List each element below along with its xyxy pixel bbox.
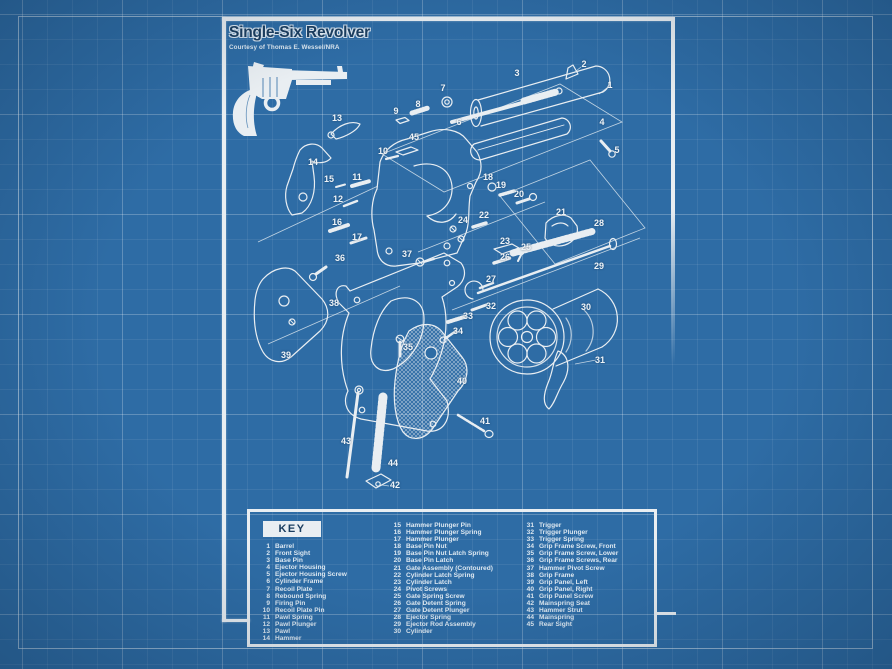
- key-item-number: 21: [389, 565, 401, 572]
- part-cylinder-frame: [372, 130, 481, 267]
- part-base-pin: [452, 88, 562, 122]
- key-item-number: 25: [389, 593, 401, 600]
- key-item-number: 36: [522, 557, 534, 564]
- key-item-name: Grip Frame: [539, 572, 574, 579]
- key-item-name: Ejector Spring: [406, 614, 451, 621]
- key-item: 43Hammer Strut: [522, 607, 618, 614]
- key-item: 23Cylinder Latch: [389, 579, 493, 586]
- key-item-number: 17: [389, 536, 401, 543]
- key-item-name: Trigger Plunger: [539, 529, 588, 536]
- key-item: 11Pawl Spring: [258, 614, 347, 621]
- key-item-number: 30: [389, 628, 401, 635]
- key-item: 9Firing Pin: [258, 600, 347, 607]
- key-item-number: 12: [258, 621, 270, 628]
- key-item-number: 41: [522, 593, 534, 600]
- key-item-name: Recoil Plate: [275, 586, 312, 593]
- key-item-name: Front Sight: [275, 550, 310, 557]
- key-item-number: 42: [522, 600, 534, 607]
- key-column-2: 15Hammer Plunger Pin16Hammer Plunger Spr…: [389, 522, 493, 636]
- key-item: 39Grip Panel, Left: [522, 579, 618, 586]
- key-item: 10Recoil Plate Pin: [258, 607, 347, 614]
- key-item: 22Cylinder Latch Spring: [389, 572, 493, 579]
- key-item-number: 15: [389, 522, 401, 529]
- key-item-name: Grip Frame Screw, Lower: [539, 550, 618, 557]
- key-item-name: Firing Pin: [275, 600, 305, 607]
- key-item-name: Hammer: [275, 635, 301, 642]
- key-item-number: 20: [389, 557, 401, 564]
- key-item: 31Trigger: [522, 522, 618, 529]
- key-item: 25Gate Spring Screw: [389, 593, 493, 600]
- key-item-name: Hammer Strut: [539, 607, 583, 614]
- key-item-name: Base Pin: [275, 557, 303, 564]
- key-item-number: 6: [258, 578, 270, 585]
- key-item-number: 3: [258, 557, 270, 564]
- part-ejector-rod-group: [465, 231, 616, 299]
- key-item-name: Grip Panel Screw: [539, 593, 593, 600]
- key-item-name: Hammer Plunger Spring: [406, 529, 481, 536]
- key-item: 45Rear Sight: [522, 621, 618, 628]
- part-grip-panel-right: [394, 324, 493, 438]
- key-item-number: 45: [522, 621, 534, 628]
- key-item: 1Barrel: [258, 543, 347, 550]
- key-item-name: Ejector Rod Assembly: [406, 621, 476, 628]
- key-item: 15Hammer Plunger Pin: [389, 522, 493, 529]
- key-item-name: Barrel: [275, 543, 294, 550]
- key-column-1: 1Barrel2Front Sight3Base Pin4Ejector Hou…: [258, 543, 347, 642]
- key-item-name: Grip Frame Screws, Rear: [539, 557, 617, 564]
- key-item: 18Base Pin Nut: [389, 543, 493, 550]
- key-item-name: Grip Panel, Right: [539, 586, 593, 593]
- fold-mark: [657, 612, 676, 615]
- key-item-name: Recoil Plate Pin: [275, 607, 324, 614]
- key-item: 40Grip Panel, Right: [522, 586, 618, 593]
- key-item: 38Grip Frame: [522, 572, 618, 579]
- key-item-name: Hammer Plunger Pin: [406, 522, 471, 529]
- key-item-name: Rebound Spring: [275, 593, 326, 600]
- key-item: 34Grip Frame Screw, Front: [522, 543, 618, 550]
- key-item: 41Grip Panel Screw: [522, 593, 618, 600]
- key-item: 33Trigger Spring: [522, 536, 618, 543]
- key-item: 17Hammer Plunger: [389, 536, 493, 543]
- key-item-name: Hammer Plunger: [406, 536, 459, 543]
- key-item: 16Hammer Plunger Spring: [389, 529, 493, 536]
- key-item-number: 44: [522, 614, 534, 621]
- key-item-name: Hammer Pivot Screw: [539, 565, 605, 572]
- key-item-number: 39: [522, 579, 534, 586]
- revolver-illustration: [233, 62, 347, 136]
- key-item-number: 23: [389, 579, 401, 586]
- key-item: 35Grip Frame Screw, Lower: [522, 550, 618, 557]
- key-item-name: Rear Sight: [539, 621, 572, 628]
- key-item-name: Cylinder Latch Spring: [406, 572, 475, 579]
- key-item-number: 27: [389, 607, 401, 614]
- key-item-number: 19: [389, 550, 401, 557]
- key-item-number: 4: [258, 564, 270, 571]
- key-item-number: 8: [258, 593, 270, 600]
- key-item: 30Cylinder: [389, 628, 493, 635]
- key-item: 19Base Pin Nut Latch Spring: [389, 550, 493, 557]
- key-header-label: KEY: [278, 523, 305, 535]
- key-item-number: 32: [522, 529, 534, 536]
- key-item-number: 40: [522, 586, 534, 593]
- part-recoil-group: [396, 97, 452, 124]
- key-item: 3Base Pin: [258, 557, 347, 564]
- key-item-name: Cylinder Frame: [275, 578, 323, 585]
- key-item: 32Trigger Plunger: [522, 529, 618, 536]
- key-item-number: 7: [258, 586, 270, 593]
- key-item: 27Gate Detent Plunger: [389, 607, 493, 614]
- key-item-number: 24: [389, 586, 401, 593]
- part-ejector-housing: [471, 118, 616, 160]
- key-item: 28Ejector Spring: [389, 614, 493, 621]
- key-item-name: Pivot Screws: [406, 586, 447, 593]
- key-item-name: Cylinder Latch: [406, 579, 452, 586]
- key-item: 20Base Pin Latch: [389, 557, 493, 564]
- key-item-name: Gate Assembly (Contoured): [406, 565, 493, 572]
- key-item-name: Grip Frame Screw, Front: [539, 543, 616, 550]
- key-item-name: Mainspring: [539, 614, 574, 621]
- key-item-name: Gate Spring Screw: [406, 593, 465, 600]
- key-item-name: Cylinder: [406, 628, 432, 635]
- key-item-number: 31: [522, 522, 534, 529]
- key-item-number: 5: [258, 571, 270, 578]
- key-item-name: Pawl Plunger: [275, 621, 316, 628]
- key-item-number: 26: [389, 600, 401, 607]
- key-item: 5Ejector Housing Screw: [258, 571, 347, 578]
- key-item: 6Cylinder Frame: [258, 578, 347, 585]
- key-item: 13Pawl: [258, 628, 347, 635]
- key-item-number: 29: [389, 621, 401, 628]
- key-item: 7Recoil Plate: [258, 586, 347, 593]
- key-header: KEY: [263, 521, 321, 537]
- key-item-name: Pawl Spring: [275, 614, 313, 621]
- key-item: 4Ejector Housing: [258, 564, 347, 571]
- key-item: 44Mainspring: [522, 614, 618, 621]
- blueprint-sheet: Single-Six Revolver Courtesy of Thomas E…: [0, 0, 892, 669]
- part-cylinder: [490, 289, 617, 374]
- key-item-name: Mainspring Seat: [539, 600, 590, 607]
- key-item-number: 9: [258, 600, 270, 607]
- key-item-number: 37: [522, 565, 534, 572]
- key-item-number: 14: [258, 635, 270, 642]
- key-item-number: 33: [522, 536, 534, 543]
- key-item-number: 11: [258, 614, 270, 621]
- key-item-number: 16: [389, 529, 401, 536]
- key-panel: KEY 1Barrel2Front Sight3Base Pin4Ejector…: [247, 509, 657, 647]
- key-item: 14Hammer: [258, 635, 347, 642]
- key-item-name: Base Pin Nut Latch Spring: [406, 550, 489, 557]
- key-item-name: Trigger Spring: [539, 536, 584, 543]
- key-item-number: 1: [258, 543, 270, 550]
- key-item: 26Gate Detent Spring: [389, 600, 493, 607]
- key-item: 24Pivot Screws: [389, 586, 493, 593]
- part-pawl-hammer: [286, 123, 360, 215]
- key-item-number: 34: [522, 543, 534, 550]
- key-item-number: 22: [389, 572, 401, 579]
- key-item-name: Base Pin Nut: [406, 543, 447, 550]
- key-item: 12Pawl Plunger: [258, 621, 347, 628]
- key-column-3: 31Trigger32Trigger Plunger33Trigger Spri…: [522, 522, 618, 628]
- key-item-name: Ejector Housing: [275, 564, 326, 571]
- key-item: 2Front Sight: [258, 550, 347, 557]
- key-item-name: Gate Detent Plunger: [406, 607, 469, 614]
- part-mainspring-group: [347, 386, 391, 488]
- key-item: 8Rebound Spring: [258, 593, 347, 600]
- key-item-name: Gate Detent Spring: [406, 600, 466, 607]
- key-item-number: 2: [258, 550, 270, 557]
- key-item-number: 43: [522, 607, 534, 614]
- part-base-pin-latch: [488, 183, 537, 203]
- key-item-number: 18: [389, 543, 401, 550]
- key-item-number: 28: [389, 614, 401, 621]
- part-hammer-small-parts: [330, 181, 370, 243]
- key-item-name: Trigger: [539, 522, 561, 529]
- key-item-number: 13: [258, 628, 270, 635]
- key-item: 42Mainspring Seat: [522, 600, 618, 607]
- key-item: 21Gate Assembly (Contoured): [389, 565, 493, 572]
- key-item-number: 10: [258, 607, 270, 614]
- key-item-name: Ejector Housing Screw: [275, 571, 347, 578]
- key-item: 36Grip Frame Screws, Rear: [522, 557, 618, 564]
- key-item: 29Ejector Rod Assembly: [389, 621, 493, 628]
- part-grip-panel-left: [254, 268, 327, 362]
- key-item-number: 35: [522, 550, 534, 557]
- key-item: 37Hammer Pivot Screw: [522, 565, 618, 572]
- key-item-number: 38: [522, 572, 534, 579]
- key-item-name: Base Pin Latch: [406, 557, 453, 564]
- key-item-name: Grip Panel, Left: [539, 579, 588, 586]
- key-item-name: Pawl: [275, 628, 290, 635]
